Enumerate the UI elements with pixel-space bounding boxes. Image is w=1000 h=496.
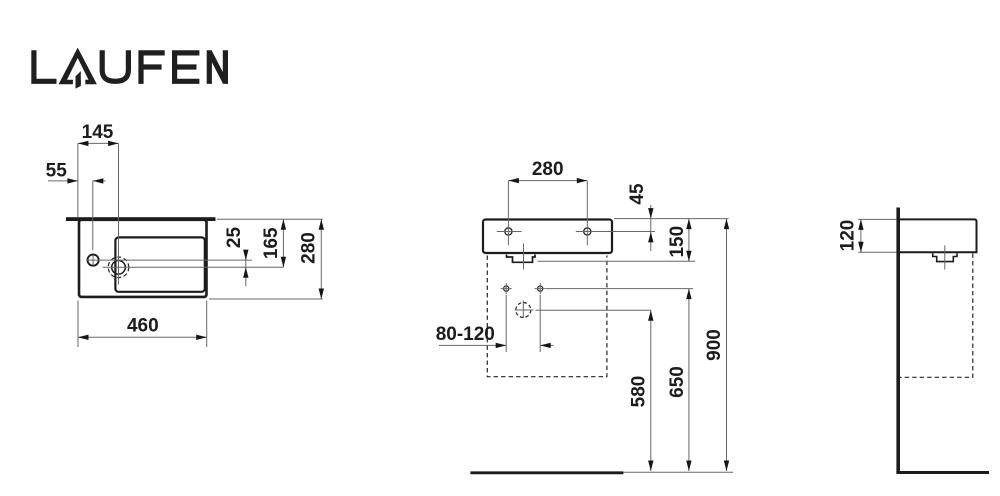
svg-text:150: 150 [667,226,688,258]
svg-text:460: 460 [127,315,159,336]
svg-text:650: 650 [667,366,688,398]
svg-text:280: 280 [298,232,319,264]
svg-text:280: 280 [532,159,564,180]
svg-text:165: 165 [261,227,282,259]
svg-text:145: 145 [82,122,114,143]
svg-text:25: 25 [224,227,245,249]
svg-text:45: 45 [627,183,648,205]
svg-text:120: 120 [838,220,859,252]
svg-text:580: 580 [628,376,649,408]
svg-text:80-120: 80-120 [436,324,495,345]
svg-text:55: 55 [46,160,68,181]
svg-text:900: 900 [704,329,725,361]
